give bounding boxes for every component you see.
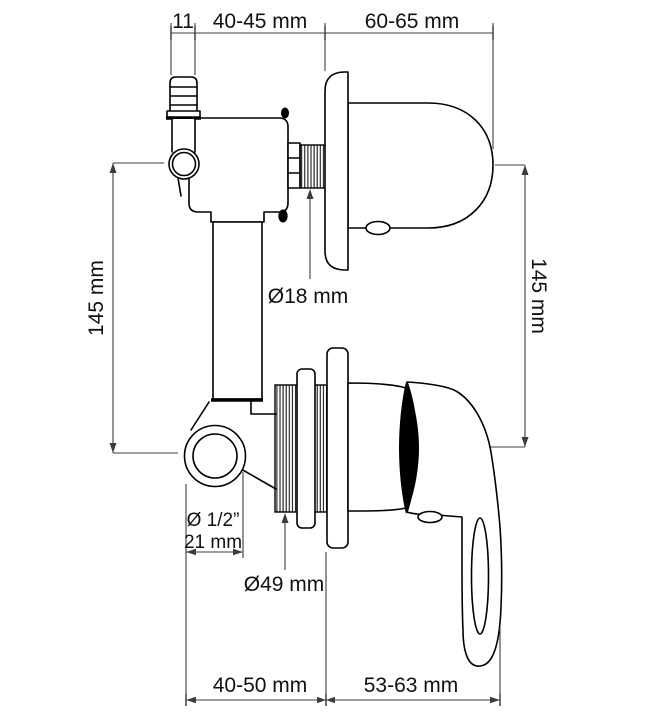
arrowhead-down: [110, 443, 117, 453]
escutcheon-plate: [325, 72, 348, 270]
bottom-dimension-group: 40-50 mm 53-63 mm: [186, 552, 500, 706]
dim-label-145-left: 145 mm: [85, 260, 108, 336]
arrowhead-mid-right: [326, 697, 335, 703]
arrowhead-down: [522, 437, 529, 447]
dome-handle: [348, 103, 493, 228]
valve-body: [189, 118, 288, 222]
body-taper-edge: [191, 402, 209, 430]
riser-pipe: [213, 222, 262, 399]
arrowhead-up: [282, 513, 289, 523]
inlet-pipe-lower-edge: [178, 178, 181, 196]
arrowhead-up: [307, 189, 314, 199]
dim-label-145-right: 145 mm: [527, 258, 550, 334]
left-height-dimension-group: 145 mm: [85, 163, 178, 453]
dim-label-21: 21 mm: [184, 532, 242, 553]
dim-label-d18: Ø18 mm: [268, 285, 349, 308]
inlet-pipe-fill: [173, 119, 194, 152]
step-ledge: [251, 401, 276, 414]
o-ring-seal-bottom: [278, 210, 287, 223]
arrowhead-mid-left: [317, 697, 326, 703]
handle-indicator-oval: [418, 512, 442, 523]
upper-valve-assembly: [166, 77, 327, 223]
dome-indicator-oval: [366, 222, 390, 235]
escutcheon-and-dome: [325, 72, 493, 270]
shower-mixer-dimension-drawing: 11 40-45 mm 60-65 mm 145 mm 145 mm: [0, 0, 647, 714]
dim-label-half-inch: Ø 1/2”: [187, 510, 240, 531]
dim-label-d49: Ø49 mm: [244, 573, 325, 596]
arrowhead-left: [186, 697, 196, 703]
dim-label-53-63: 53-63 mm: [364, 674, 459, 697]
arrowhead-up: [522, 165, 529, 175]
inlet-port-inner-ring: [193, 434, 237, 478]
technical-drawing-page: 11 40-45 mm 60-65 mm 145 mm 145 mm: [0, 0, 647, 714]
arrowhead-right: [490, 697, 500, 703]
arrowhead-up: [110, 163, 117, 173]
dim-label-11: 11: [172, 10, 194, 33]
side-port-inner-ring: [173, 153, 196, 176]
upper-thread: [300, 145, 327, 188]
port-dimension-group: Ø 1/2” 21 mm: [184, 472, 243, 706]
lever-handle: [407, 382, 502, 666]
o-ring-seal-top: [281, 108, 289, 119]
wall-flange: [327, 348, 348, 548]
dim-label-40-50: 40-50 mm: [213, 674, 308, 697]
dim-label-60-65: 60-65 mm: [365, 10, 460, 33]
locknut-flange: [297, 369, 315, 528]
stepped-nut: [288, 143, 300, 188]
dim-label-40-45: 40-45 mm: [213, 10, 308, 33]
mixer-body: [348, 383, 406, 511]
body-taper-edge: [241, 469, 276, 489]
right-height-dimension-group: 145 mm: [490, 165, 550, 447]
